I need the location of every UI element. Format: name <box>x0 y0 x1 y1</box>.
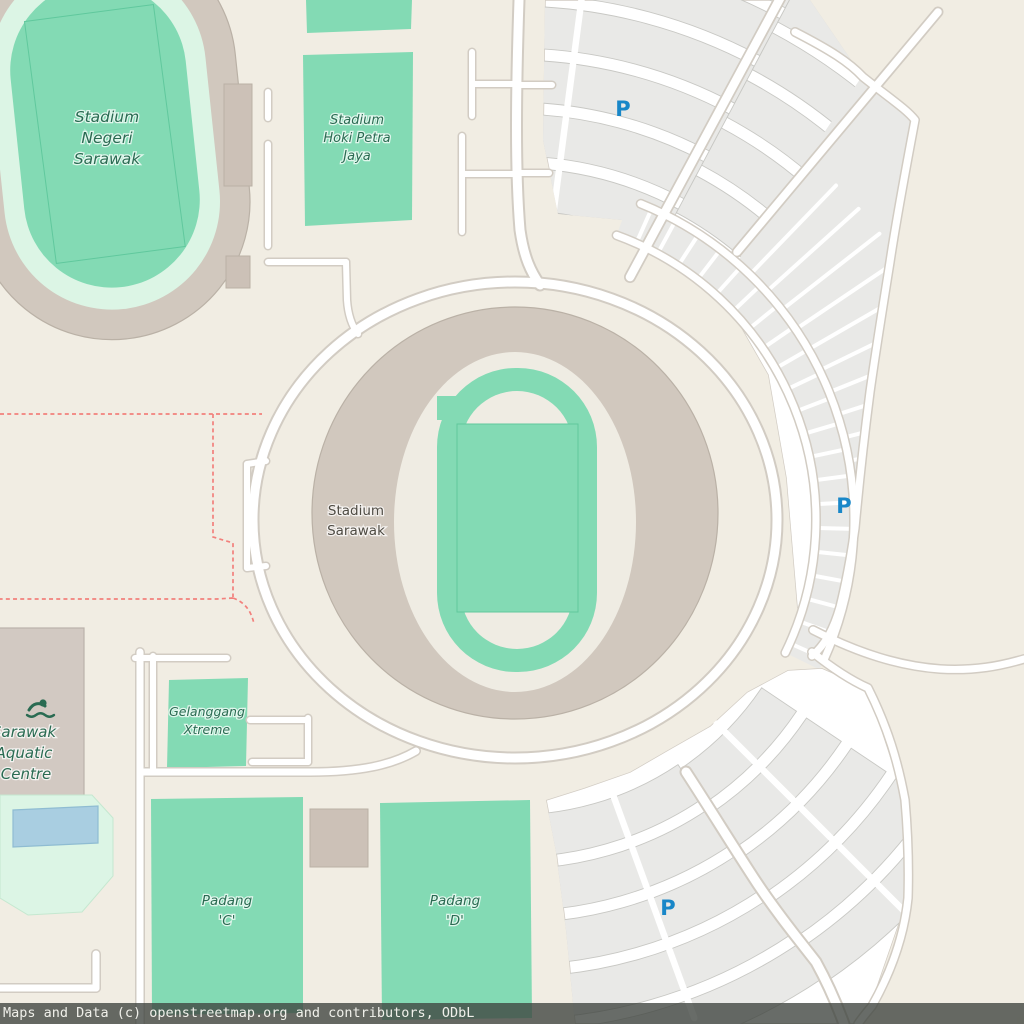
stadium-sarawak-label: Stadium <box>328 503 384 519</box>
parking-icon: P <box>660 896 675 920</box>
aquatic-centre-label: Aquatic <box>0 744 53 762</box>
parking-aisle <box>817 528 853 529</box>
stadium-negeri-label: Sarawak <box>74 150 141 168</box>
padang-c-label: Padang <box>202 893 253 909</box>
parking-icon: P <box>615 97 630 121</box>
stadium-negeri-label: Negeri <box>81 129 133 147</box>
gelanggang-label: Xtreme <box>183 722 230 737</box>
gelanggang-label: Gelanggang <box>169 704 245 719</box>
stadium-hoki-label: Hoki Petra <box>323 131 390 146</box>
stadium-hoki-label: Jaya <box>340 149 370 164</box>
parking-icon: P <box>836 494 851 518</box>
padang-d-label: Padang <box>430 893 481 909</box>
aquatic-centre-label: Centre <box>1 765 52 783</box>
map-viewport[interactable]: Stadium Negeri Sarawak Stadium Hoki Petr… <box>0 0 1024 1024</box>
aquatic-centre-label: Sarawak <box>0 723 57 741</box>
grandstand-block-small <box>226 256 250 288</box>
west-gate-loop <box>247 566 266 568</box>
attribution-bar[interactable]: Maps and Data (c) openstreetmap.org and … <box>0 1003 1024 1024</box>
stadium-sarawak-label: Sarawak <box>327 523 385 539</box>
small-building <box>310 809 368 867</box>
grandstand-block <box>224 84 252 186</box>
stadium-negeri-label: Stadium <box>75 108 139 126</box>
padang-c-label: 'C' <box>219 913 236 929</box>
map-canvas[interactable]: Stadium Negeri Sarawak Stadium Hoki Petr… <box>0 0 1024 1024</box>
swimming-pool <box>13 806 98 847</box>
padang-d-area <box>380 800 532 1020</box>
west-gate-loop <box>247 461 266 464</box>
stadium-hoki-label: Stadium <box>330 113 384 128</box>
padang-d-label: 'D' <box>446 913 464 929</box>
